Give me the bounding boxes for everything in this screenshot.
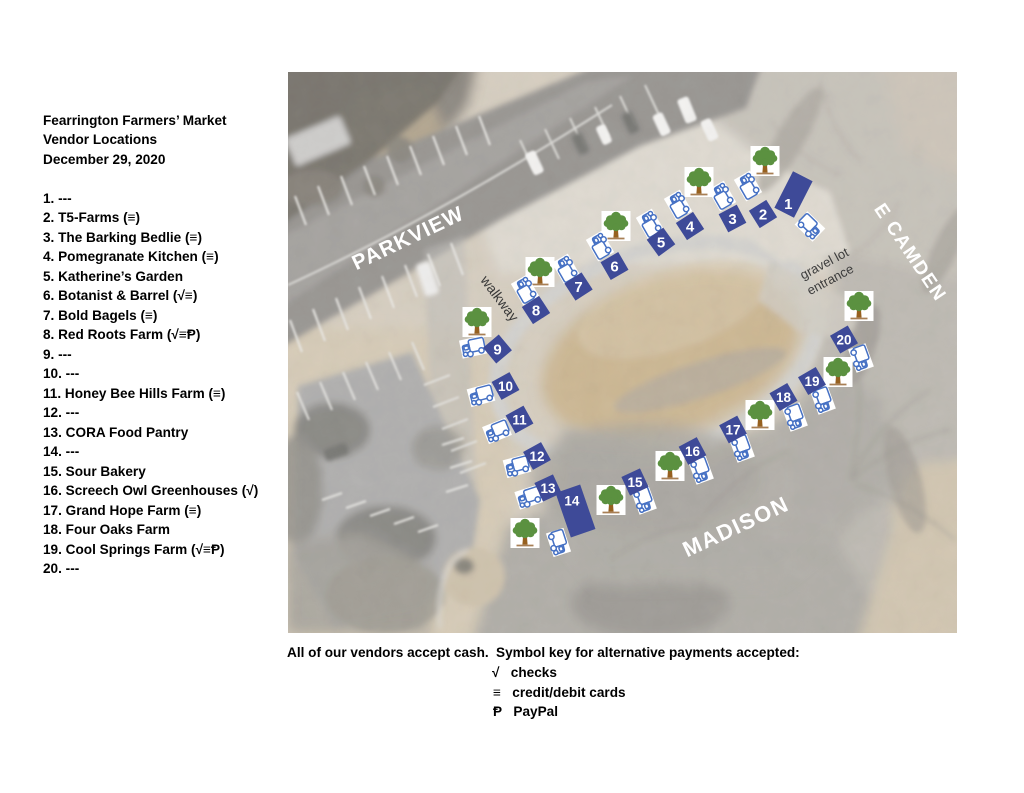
svg-text:12: 12: [529, 449, 544, 464]
svg-text:9: 9: [493, 342, 501, 359]
svg-text:18: 18: [776, 390, 792, 405]
svg-text:2: 2: [759, 207, 767, 224]
svg-text:15: 15: [627, 475, 643, 490]
svg-text:16: 16: [685, 444, 701, 459]
svg-text:6: 6: [610, 259, 618, 276]
svg-text:8: 8: [532, 303, 540, 320]
svg-text:4: 4: [686, 219, 695, 236]
svg-text:20: 20: [836, 333, 851, 348]
svg-text:3: 3: [728, 211, 736, 228]
svg-text:11: 11: [512, 413, 527, 428]
svg-text:17: 17: [725, 423, 740, 438]
svg-text:13: 13: [540, 481, 556, 496]
svg-text:19: 19: [804, 374, 819, 389]
svg-text:5: 5: [657, 235, 665, 252]
svg-text:10: 10: [498, 379, 513, 394]
svg-text:1: 1: [784, 196, 792, 213]
svg-text:14: 14: [564, 494, 580, 509]
svg-text:7: 7: [574, 279, 582, 296]
